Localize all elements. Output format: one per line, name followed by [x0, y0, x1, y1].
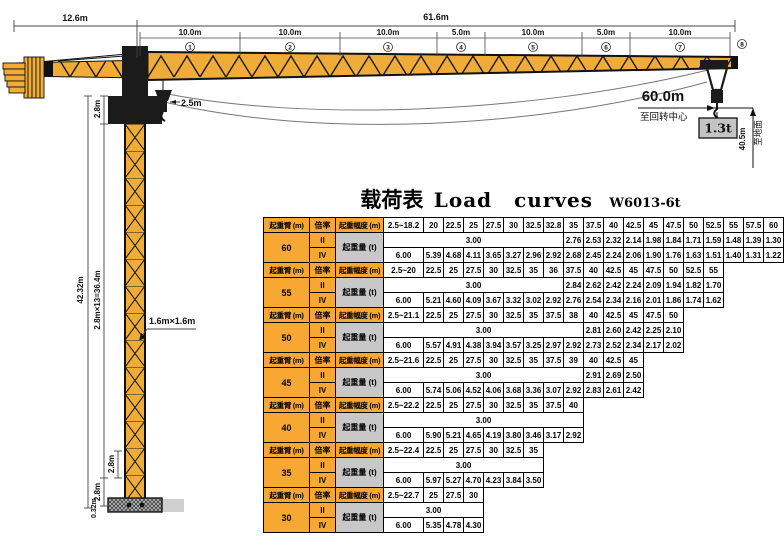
capacity-value: 3.67 — [484, 293, 504, 308]
radius-value: 30 — [484, 263, 504, 278]
radius-value: 30 — [484, 353, 504, 368]
capacity-value: 2.45 — [584, 248, 604, 263]
radius-value: 55 — [724, 218, 744, 233]
capacity-header: 起重量 (t) — [336, 323, 384, 353]
capacity-value: 1.63 — [684, 248, 704, 263]
radius-value: 47.5 — [644, 263, 664, 278]
capacity-value: 5.39 — [424, 248, 444, 263]
svg-text:5.0m: 5.0m — [597, 28, 615, 37]
radius-value: 50 — [684, 218, 704, 233]
radius-value: 27.5 — [464, 263, 484, 278]
tower-total-height-label: 42.32m — [76, 276, 85, 303]
capacity-header: 起重量 (t) — [336, 413, 384, 443]
radius-value: 37.5 — [544, 353, 564, 368]
radius-value: 42.5 — [604, 263, 624, 278]
radius-value: 22.5 — [444, 218, 464, 233]
capacity-value: 3.02 — [524, 293, 544, 308]
radius-value: 20 — [424, 218, 444, 233]
capacity-value: 6.00 — [384, 248, 424, 263]
capacity-value: 2.06 — [624, 248, 644, 263]
radius-value: 35 — [524, 398, 544, 413]
radius-value: 32.5 — [504, 263, 524, 278]
capacity-value: 1.98 — [644, 233, 664, 248]
capacity-value: 1.22 — [764, 248, 784, 263]
radius-value: 30 — [484, 398, 504, 413]
radius-value: 47.5 — [644, 308, 664, 323]
radius-value: 22.5 — [424, 398, 444, 413]
capacity-value: 2.92 — [564, 383, 584, 398]
capacity-value: 1.48 — [724, 233, 744, 248]
load-table-title: 载荷表 Load curves W6013-6t — [268, 184, 773, 214]
capacity-value: 4.65 — [464, 428, 484, 443]
radius-value: 45 — [644, 218, 664, 233]
load-section-40: 起重臂 (m)倍率起重幅度 (m)2.5~22.222.52527.53032.… — [263, 397, 584, 443]
boom-header: 起重臂 (m) — [264, 353, 310, 368]
radius-value: 2.5~18.2 — [384, 218, 424, 233]
capacity-value: 2.17 — [644, 338, 664, 353]
capacity-header: 起重量 (t) — [336, 368, 384, 398]
boom-header: 起重臂 (m) — [264, 308, 310, 323]
capacity-value: 5.90 — [424, 428, 444, 443]
tower-cross-section-label: 1.6m×1.6m — [149, 316, 195, 326]
capacity-value: 3.68 — [504, 383, 524, 398]
radius-header: 起重幅度 (m) — [336, 443, 384, 458]
radius-value: 22.5 — [424, 443, 444, 458]
climbing-frame — [108, 96, 162, 124]
radius-value: 60 — [764, 218, 784, 233]
capacity-value: 3.65 — [484, 248, 504, 263]
radius-value: 2.5~21.1 — [384, 308, 424, 323]
capacity-flat: 3.00 — [384, 368, 584, 383]
capacity-value: 4.70 — [464, 473, 484, 488]
capacity-value: 5.21 — [444, 428, 464, 443]
radius-value: 32.5 — [524, 218, 544, 233]
radius-value: 30 — [484, 443, 504, 458]
boom-length: 55 — [264, 278, 310, 308]
capacity-value: 2.25 — [644, 323, 664, 338]
capacity-value: 3.32 — [504, 293, 524, 308]
capacity-value: 6.00 — [384, 428, 424, 443]
capacity-value: 2.42 — [624, 323, 644, 338]
capacity-value: 3.27 — [504, 248, 524, 263]
capacity-value: 2.42 — [604, 278, 624, 293]
radius-value: 35 — [564, 218, 584, 233]
ratio-header: 倍率 — [310, 218, 336, 233]
radius-value: 25 — [444, 443, 464, 458]
capacity-value: 5.06 — [444, 383, 464, 398]
capacity-value: 2.69 — [604, 368, 624, 383]
svg-text:4: 4 — [459, 45, 463, 52]
capacity-value: 6.00 — [384, 293, 424, 308]
capacity-value: 2.96 — [524, 248, 544, 263]
radius-value: 42.5 — [624, 218, 644, 233]
capacity-value: 2.76 — [564, 233, 584, 248]
capacity-value: 6.00 — [384, 473, 424, 488]
tower-cross-section-callout: 1.6m×1.6m — [139, 316, 196, 341]
capacity-value: 3.46 — [524, 428, 544, 443]
tower-sections-label: 2.8m×13=36.4m — [93, 270, 102, 329]
load-curves-table: 起重臂 (m)倍率起重幅度 (m)2.5~18.22022.52527.5303… — [263, 218, 784, 533]
capacity-value: 2.83 — [584, 383, 604, 398]
load-section-45: 起重臂 (m)倍率起重幅度 (m)2.5~21.622.52527.53032.… — [263, 352, 644, 398]
svg-text:10.0m: 10.0m — [669, 28, 692, 37]
capacity-value: 1.39 — [744, 233, 764, 248]
capacity-value: 2.76 — [564, 293, 584, 308]
radius-value: 27.5 — [444, 488, 464, 503]
capacity-value: 2.14 — [624, 233, 644, 248]
radius-value: 40 — [584, 308, 604, 323]
radius-value: 36 — [544, 263, 564, 278]
svg-text:10.0m: 10.0m — [377, 28, 400, 37]
top-section-height-label: 2.8m — [93, 100, 102, 118]
capacity-value: 2.61 — [604, 383, 624, 398]
capacity-value: 1.70 — [704, 278, 724, 293]
capacity-flat: 3.00 — [384, 323, 584, 338]
load-section-60: 起重臂 (m)倍率起重幅度 (m)2.5~18.22022.52527.5303… — [263, 217, 784, 263]
capacity-value: 2.16 — [624, 293, 644, 308]
boom-length: 30 — [264, 503, 310, 533]
title-en: Load curves — [434, 188, 593, 212]
load-section-55: 起重臂 (m)倍率起重幅度 (m)2.5~2022.52527.53032.53… — [263, 262, 724, 308]
ratio-ii: II — [310, 503, 336, 518]
capacity-value: 4.09 — [464, 293, 484, 308]
capacity-header: 起重量 (t) — [336, 503, 384, 533]
radius-header: 起重幅度 (m) — [336, 308, 384, 323]
capacity-flat: 3.00 — [384, 413, 584, 428]
capacity-value: 1.94 — [664, 278, 684, 293]
ratio-iv: IV — [310, 428, 336, 443]
svg-text:10.0m: 10.0m — [522, 28, 545, 37]
capacity-value: 1.74 — [684, 293, 704, 308]
radius-value: 22.5 — [424, 353, 444, 368]
ratio-ii: II — [310, 413, 336, 428]
radius-value: 25 — [444, 398, 464, 413]
radius-value: 42.5 — [604, 353, 624, 368]
radius-value: 45 — [624, 353, 644, 368]
capacity-value: 1.51 — [704, 248, 724, 263]
load-section-35: 起重臂 (m)倍率起重幅度 (m)2.5~22.422.52527.53032.… — [263, 442, 544, 488]
capacity-value: 3.17 — [544, 428, 564, 443]
radius-value: 37.5 — [564, 263, 584, 278]
svg-text:5: 5 — [531, 45, 535, 52]
to-slew-center-label: 至回转中心 — [640, 111, 688, 123]
capacity-value: 5.21 — [424, 293, 444, 308]
counter-jib-length-label: 12.6m — [62, 13, 88, 23]
capacity-value: 2.34 — [604, 293, 624, 308]
capacity-value: 4.78 — [444, 518, 464, 533]
ratio-header: 倍率 — [310, 443, 336, 458]
radius-value: 40 — [584, 353, 604, 368]
radius-value: 32.8 — [544, 218, 564, 233]
capacity-value: 2.92 — [564, 428, 584, 443]
radius-value: 40 — [584, 263, 604, 278]
svg-text:10.0m: 10.0m — [179, 28, 202, 37]
capacity-value: 3.84 — [504, 473, 524, 488]
capacity-value: 2.81 — [584, 323, 604, 338]
radius-value: 25 — [444, 263, 464, 278]
foundation-shadow — [162, 499, 184, 512]
segment-numbers: 1 2 3 4 5 6 7 8 — [188, 42, 744, 52]
tip-load-box: 1.3t — [699, 118, 737, 138]
ratio-ii: II — [310, 233, 336, 248]
capacity-value: 4.91 — [444, 338, 464, 353]
radius-value: 47.5 — [664, 218, 684, 233]
capacity-value: 3.36 — [524, 383, 544, 398]
segment-number-badges — [186, 40, 747, 52]
ratio-iv: IV — [310, 473, 336, 488]
radius-arrow — [707, 105, 715, 111]
capacity-flat: 3.00 — [384, 233, 564, 248]
boom-length: 40 — [264, 413, 310, 443]
capacity-value: 2.73 — [584, 338, 604, 353]
ratio-ii: II — [310, 278, 336, 293]
capacity-value: 4.23 — [484, 473, 504, 488]
foundation — [108, 498, 184, 512]
capacity-value: 3.07 — [544, 383, 564, 398]
ratio-header: 倍率 — [310, 353, 336, 368]
capacity-value: 3.50 — [524, 473, 544, 488]
capacity-value: 4.30 — [464, 518, 484, 533]
tower-mast — [108, 46, 162, 500]
radius-value: 37.5 — [544, 308, 564, 323]
capacity-header: 起重量 (t) — [336, 458, 384, 488]
capacity-value: 2.24 — [604, 248, 624, 263]
ratio-ii: II — [310, 323, 336, 338]
radius-value: 30 — [464, 488, 484, 503]
capacity-flat: 3.00 — [384, 458, 544, 473]
radius-value: 22.5 — [424, 308, 444, 323]
capacity-value: 3.57 — [504, 338, 524, 353]
radius-value: 27.5 — [484, 218, 504, 233]
radius-value: 57.5 — [744, 218, 764, 233]
capacity-value: 1.62 — [704, 293, 724, 308]
ratio-header: 倍率 — [310, 308, 336, 323]
capacity-value: 5.74 — [424, 383, 444, 398]
capacity-value: 2.62 — [584, 278, 604, 293]
capacity-value: 3.94 — [484, 338, 504, 353]
radius-value: 25 — [424, 488, 444, 503]
svg-text:6: 6 — [604, 45, 608, 52]
capacity-value: 3.80 — [504, 428, 524, 443]
capacity-value: 1.90 — [644, 248, 664, 263]
radius-value: 39 — [564, 353, 584, 368]
radius-value: 2.5~22.4 — [384, 443, 424, 458]
capacity-value: 6.00 — [384, 338, 424, 353]
capacity-value: 2.09 — [644, 278, 664, 293]
radius-value: 37.5 — [544, 398, 564, 413]
boom-header: 起重臂 (m) — [264, 443, 310, 458]
jib-tip — [731, 56, 738, 69]
tower-hook-offset-label: 2.5m — [181, 98, 202, 108]
boom-length: 35 — [264, 458, 310, 488]
radius-value: 2.5~20 — [384, 263, 424, 278]
capacity-value: 2.92 — [544, 248, 564, 263]
radius-value: 25 — [444, 308, 464, 323]
capacity-value: 4.68 — [444, 248, 464, 263]
radius-value: 22.5 — [424, 263, 444, 278]
to-ground-label: 至地面 — [753, 120, 763, 146]
ratio-header: 倍率 — [310, 488, 336, 503]
hook-height-dimension: 40.5m 至地面 — [738, 108, 763, 168]
radius-value: 35 — [524, 353, 544, 368]
ratio-ii: II — [310, 458, 336, 473]
ratio-iv: IV — [310, 383, 336, 398]
capacity-value: 2.50 — [624, 368, 644, 383]
svg-text:2: 2 — [288, 45, 292, 52]
load-section-50: 起重臂 (m)倍率起重幅度 (m)2.5~21.122.52527.53032.… — [263, 307, 684, 353]
radius-value: 32.5 — [504, 308, 524, 323]
capacity-value: 1.31 — [744, 248, 764, 263]
radius-value: 55 — [704, 263, 724, 278]
capacity-value: 5.57 — [424, 338, 444, 353]
radius-value: 2.5~21.6 — [384, 353, 424, 368]
capacity-value: 2.60 — [604, 323, 624, 338]
capacity-value: 6.00 — [384, 518, 424, 533]
ratio-header: 倍率 — [310, 263, 336, 278]
radius-value: 42.5 — [604, 308, 624, 323]
radius-value: 25 — [444, 353, 464, 368]
tower-height-dimensions — [84, 96, 122, 508]
radius-value: 52.5 — [704, 218, 724, 233]
capacity-flat: 3.00 — [384, 503, 484, 518]
capacity-value: 4.06 — [484, 383, 504, 398]
boom-length: 45 — [264, 368, 310, 398]
capacity-value: 4.60 — [444, 293, 464, 308]
capacity-value: 5.27 — [444, 473, 464, 488]
capacity-value: 2.10 — [664, 323, 684, 338]
ratio-iv: IV — [310, 338, 336, 353]
radius-value: 32.5 — [504, 398, 524, 413]
svg-text:7: 7 — [678, 45, 682, 52]
radius-header: 起重幅度 (m) — [336, 353, 384, 368]
capacity-value: 5.97 — [424, 473, 444, 488]
radius-value: 45 — [624, 263, 644, 278]
radius-value: 37.5 — [584, 218, 604, 233]
ratio-header: 倍率 — [310, 398, 336, 413]
radius-header: 起重幅度 (m) — [336, 488, 384, 503]
boom-header: 起重臂 (m) — [264, 488, 310, 503]
radius-header: 起重幅度 (m) — [336, 263, 384, 278]
radius-value: 2.5~22.7 — [384, 488, 424, 503]
capacity-value: 2.42 — [624, 383, 644, 398]
capacity-value: 2.32 — [604, 233, 624, 248]
capacity-value: 2.91 — [584, 368, 604, 383]
height-arrow — [750, 108, 756, 116]
radius-value: 32.5 — [504, 353, 524, 368]
radius-value: 30 — [484, 308, 504, 323]
radius-value: 40 — [564, 398, 584, 413]
ratio-ii: II — [310, 368, 336, 383]
section-height-a-label: 2.8m — [107, 455, 116, 473]
svg-text:5.0m: 5.0m — [452, 28, 470, 37]
capacity-value: 1.86 — [664, 293, 684, 308]
radius-value: 25 — [464, 218, 484, 233]
capacity-value: 2.24 — [624, 278, 644, 293]
capacity-value: 1.82 — [684, 278, 704, 293]
capacity-value: 1.71 — [684, 233, 704, 248]
max-radius-label: 60.0m — [642, 88, 685, 105]
counterweight-slabs — [3, 57, 44, 98]
boom-header: 起重臂 (m) — [264, 218, 310, 233]
capacity-header: 起重量 (t) — [336, 233, 384, 263]
radius-line — [638, 105, 753, 111]
title-cn: 载荷表 — [360, 187, 423, 212]
capacity-value: 3.25 — [524, 338, 544, 353]
capacity-value: 1.84 — [664, 233, 684, 248]
boom-length: 50 — [264, 323, 310, 353]
radius-value: 27.5 — [464, 353, 484, 368]
radius-value: 2.5~22.2 — [384, 398, 424, 413]
capacity-value: 2.84 — [564, 278, 584, 293]
capacity-value: 2.54 — [584, 293, 604, 308]
radius-header: 起重幅度 (m) — [336, 218, 384, 233]
radius-value: 40 — [604, 218, 624, 233]
main-jib — [148, 50, 738, 82]
tip-load-label: 1.3t — [704, 121, 732, 136]
radius-header: 起重幅度 (m) — [336, 398, 384, 413]
radius-value: 35 — [524, 308, 544, 323]
tower-hook-block: 2.5m — [155, 80, 202, 121]
svg-text:1: 1 — [188, 45, 192, 52]
svg-text:8: 8 — [740, 42, 744, 49]
radius-value: 50 — [664, 308, 684, 323]
svg-text:10.0m: 10.0m — [279, 28, 302, 37]
radius-value: 45 — [624, 308, 644, 323]
radius-value: 52.5 — [684, 263, 704, 278]
capacity-value: 2.01 — [644, 293, 664, 308]
radius-value: 30 — [504, 218, 524, 233]
hook-height-label: 40.5m — [738, 128, 747, 151]
radius-value: 50 — [664, 263, 684, 278]
capacity-value: 2.34 — [624, 338, 644, 353]
radius-value: 35 — [524, 263, 544, 278]
capacity-value: 2.92 — [544, 293, 564, 308]
capacity-header: 起重量 (t) — [336, 278, 384, 308]
capacity-value: 1.40 — [724, 248, 744, 263]
capacity-value: 4.11 — [464, 248, 484, 263]
crane-model: W6013-6t — [609, 196, 680, 211]
capacity-value: 2.02 — [664, 338, 684, 353]
radius-value: 27.5 — [464, 443, 484, 458]
segment-length-labels: 10.0m 10.0m 10.0m 5.0m 10.0m 5.0m 10.0m — [179, 28, 692, 37]
ratio-iv: IV — [310, 293, 336, 308]
capacity-value: 4.19 — [484, 428, 504, 443]
capacity-value: 1.30 — [764, 233, 784, 248]
capacity-value: 2.97 — [544, 338, 564, 353]
capacity-value: 1.76 — [664, 248, 684, 263]
capacity-value: 2.52 — [604, 338, 624, 353]
capacity-value: 2.68 — [564, 248, 584, 263]
radius-value: 27.5 — [464, 398, 484, 413]
crane-spec-sheet: 2.5m 12.6m 61.6m — [0, 0, 784, 536]
capacity-value: 5.35 — [424, 518, 444, 533]
radius-value: 38 — [564, 308, 584, 323]
jib-length-label: 61.6m — [423, 12, 449, 22]
capacity-value: 6.00 — [384, 383, 424, 398]
ratio-iv: IV — [310, 518, 336, 533]
svg-text:3: 3 — [386, 45, 390, 52]
radius-value: 35 — [524, 443, 544, 458]
capacity-flat: 3.00 — [384, 278, 564, 293]
radius-value: 27.5 — [464, 308, 484, 323]
capacity-value: 1.59 — [704, 233, 724, 248]
boom-header: 起重臂 (m) — [264, 263, 310, 278]
ratio-iv: IV — [310, 248, 336, 263]
boom-header: 起重臂 (m) — [264, 398, 310, 413]
boom-length: 60 — [264, 233, 310, 263]
capacity-value: 4.38 — [464, 338, 484, 353]
base-height-label: 0.32m — [91, 498, 98, 518]
